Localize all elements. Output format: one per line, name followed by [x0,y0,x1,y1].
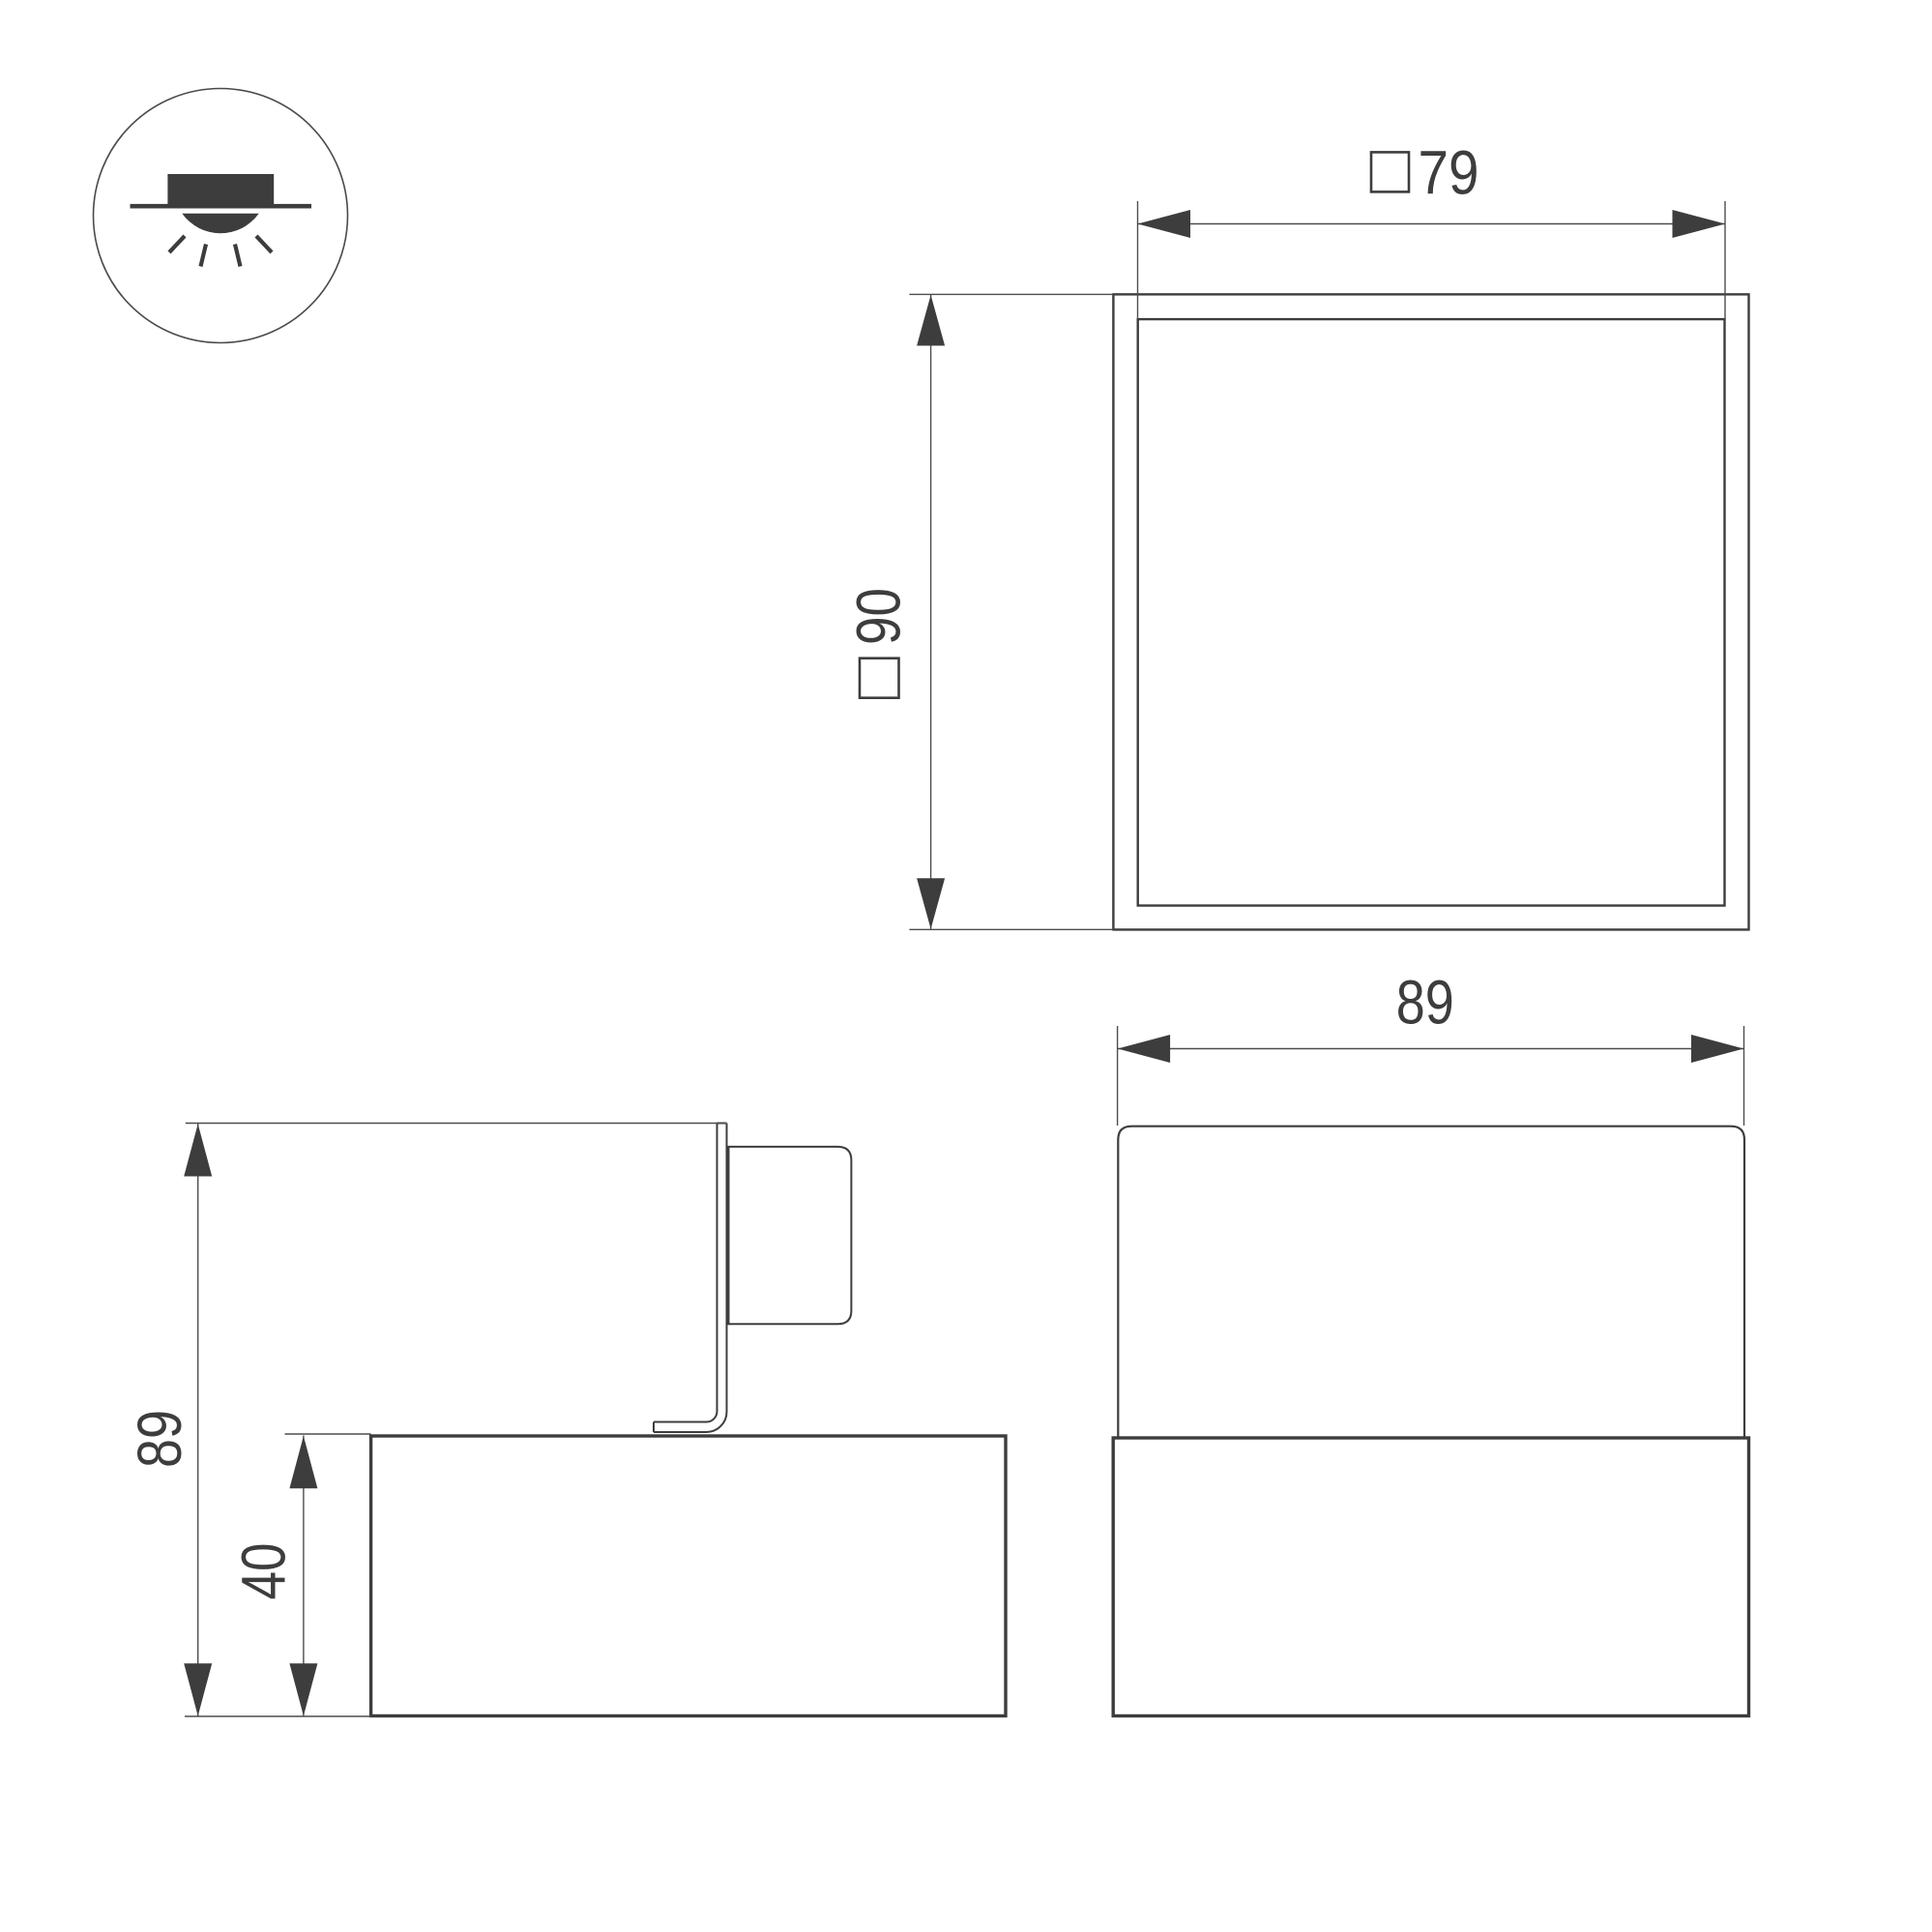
svg-text:89: 89 [1396,968,1454,1038]
svg-text:89: 89 [125,1410,194,1468]
svg-text:40: 40 [229,1543,299,1600]
svg-text:79: 79 [1419,137,1479,207]
svg-text:90: 90 [844,588,914,645]
